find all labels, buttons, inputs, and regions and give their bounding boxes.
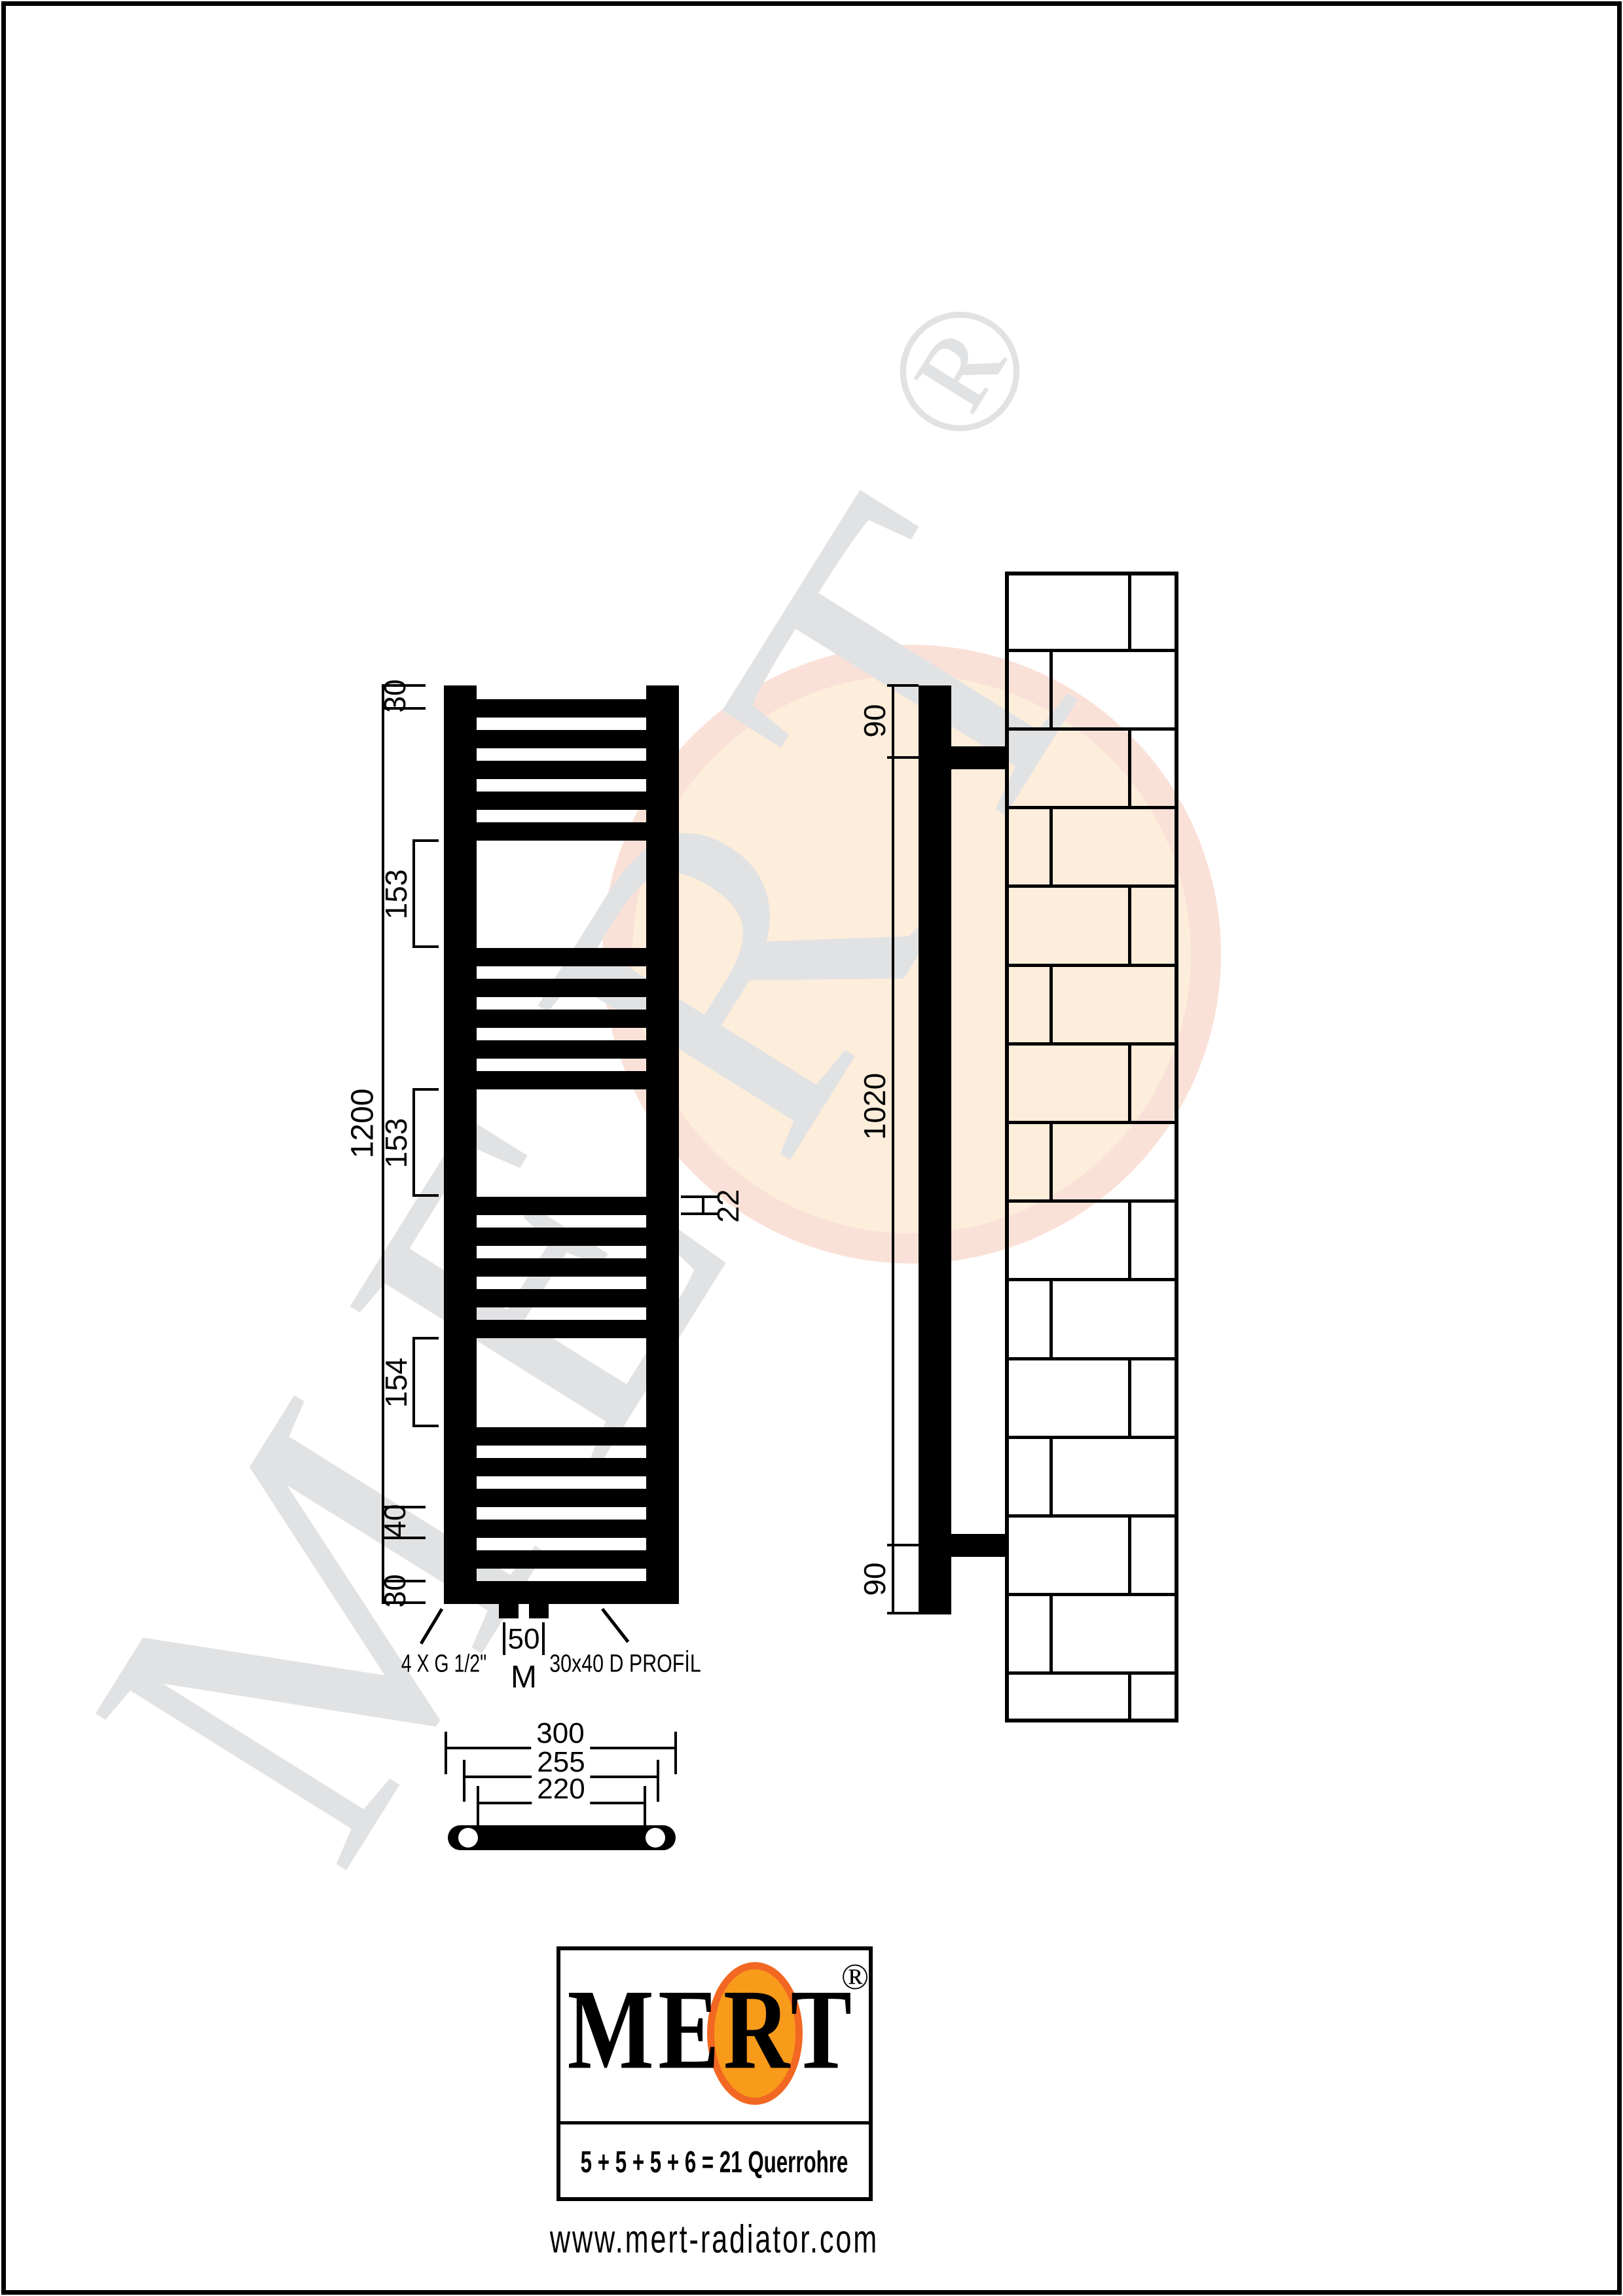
drawing-page: MERT® 30 40 30 1200 153 153: [0, 0, 1623, 2296]
radiator-rung: [477, 730, 646, 748]
radiator-rung: [477, 1197, 646, 1215]
radiator-rung: [477, 1289, 646, 1307]
side-bracket-top: [951, 746, 1006, 769]
dim-tick: [412, 1194, 439, 1197]
radiator-rung: [477, 1489, 646, 1507]
bottom-view-port-right: [646, 1828, 665, 1848]
dim-label-154: 154: [378, 1358, 414, 1408]
bottom-view-tube: [448, 1825, 676, 1850]
dim-label-30-top: 30: [377, 679, 412, 712]
dim-tick: [887, 1612, 919, 1614]
side-dim-line: [892, 685, 894, 1614]
radiator-rung: [477, 1040, 646, 1059]
dim-tick: [412, 945, 439, 948]
dim-label-1020: 1020: [857, 1073, 892, 1140]
radiator-rung: [477, 948, 646, 966]
dim-tick: [503, 1622, 505, 1655]
dim-label-90-top: 90: [857, 704, 892, 737]
front-bottom-profile: [444, 1581, 679, 1604]
dim-tick: [477, 1786, 479, 1827]
logo-registered-icon: ®: [841, 1956, 869, 1998]
front-left-tube: [444, 685, 477, 1604]
radiator-rung: [477, 1427, 646, 1446]
radiator-rung: [477, 1550, 646, 1569]
logo-wordmark: MERT: [568, 1964, 856, 2096]
dim-label-90-bottom: 90: [857, 1562, 892, 1595]
dim-label-30-bottom: 30: [377, 1574, 412, 1607]
dim-label-300: 300: [531, 1717, 589, 1750]
website-text: www.mert-radiator.com: [550, 2217, 879, 2262]
dim-connector: [702, 1195, 704, 1215]
bottom-view-port-left: [458, 1828, 478, 1848]
leader-line-right: [601, 1608, 629, 1643]
dim-tick: [412, 1088, 439, 1091]
front-right-tube: [646, 685, 679, 1604]
radiator-rung: [477, 699, 646, 718]
dim-tick: [887, 1544, 919, 1546]
dim-label-153b: 153: [378, 1118, 414, 1169]
logo-divider: [556, 2121, 873, 2124]
label-m-connection: M: [511, 1660, 537, 1696]
label-connections: 4 X G 1/2": [401, 1650, 487, 1679]
radiator-rung: [477, 1071, 646, 1089]
dim-tick: [463, 1760, 465, 1802]
dim-label-40: 40: [377, 1504, 412, 1537]
radiator-rung: [477, 1320, 646, 1338]
radiator-rung: [477, 1520, 646, 1538]
dim-tick: [412, 1425, 439, 1427]
radiator-rung: [477, 979, 646, 997]
front-connection-stub-right: [529, 1604, 549, 1618]
dim-tick: [412, 839, 439, 842]
side-bracket-bottom: [951, 1534, 1006, 1557]
radiator-rung: [477, 761, 646, 779]
dim-tick: [887, 756, 919, 759]
dim-tick: [887, 684, 919, 687]
dim-tick: [445, 1732, 447, 1774]
dim-tick: [657, 1760, 659, 1802]
dim-label-1200: 1200: [345, 1089, 381, 1159]
logo-formula: 5 + 5 + 5 + 6 = 21 Querrohre: [581, 2144, 848, 2179]
dim-label-50: 50: [508, 1623, 540, 1656]
dim-tick: [412, 1337, 439, 1339]
dim-tick: [542, 1622, 545, 1655]
radiator-rung: [477, 822, 646, 841]
dim-tick: [644, 1786, 646, 1827]
front-connection-stub-left: [499, 1604, 519, 1618]
radiator-rung: [477, 1228, 646, 1246]
label-profile: 30x40 D PROFİL: [549, 1650, 701, 1679]
leader-line-left: [420, 1608, 443, 1645]
dim-label-22: 22: [710, 1189, 746, 1222]
side-radiator-bar: [919, 685, 951, 1614]
radiator-rung: [477, 1458, 646, 1476]
dim-label-153a: 153: [378, 869, 414, 920]
radiator-rung: [477, 792, 646, 810]
dim-label-220: 220: [532, 1773, 590, 1806]
dim-tick: [674, 1732, 677, 1774]
radiator-rung: [477, 1010, 646, 1028]
radiator-rung: [477, 1258, 646, 1277]
